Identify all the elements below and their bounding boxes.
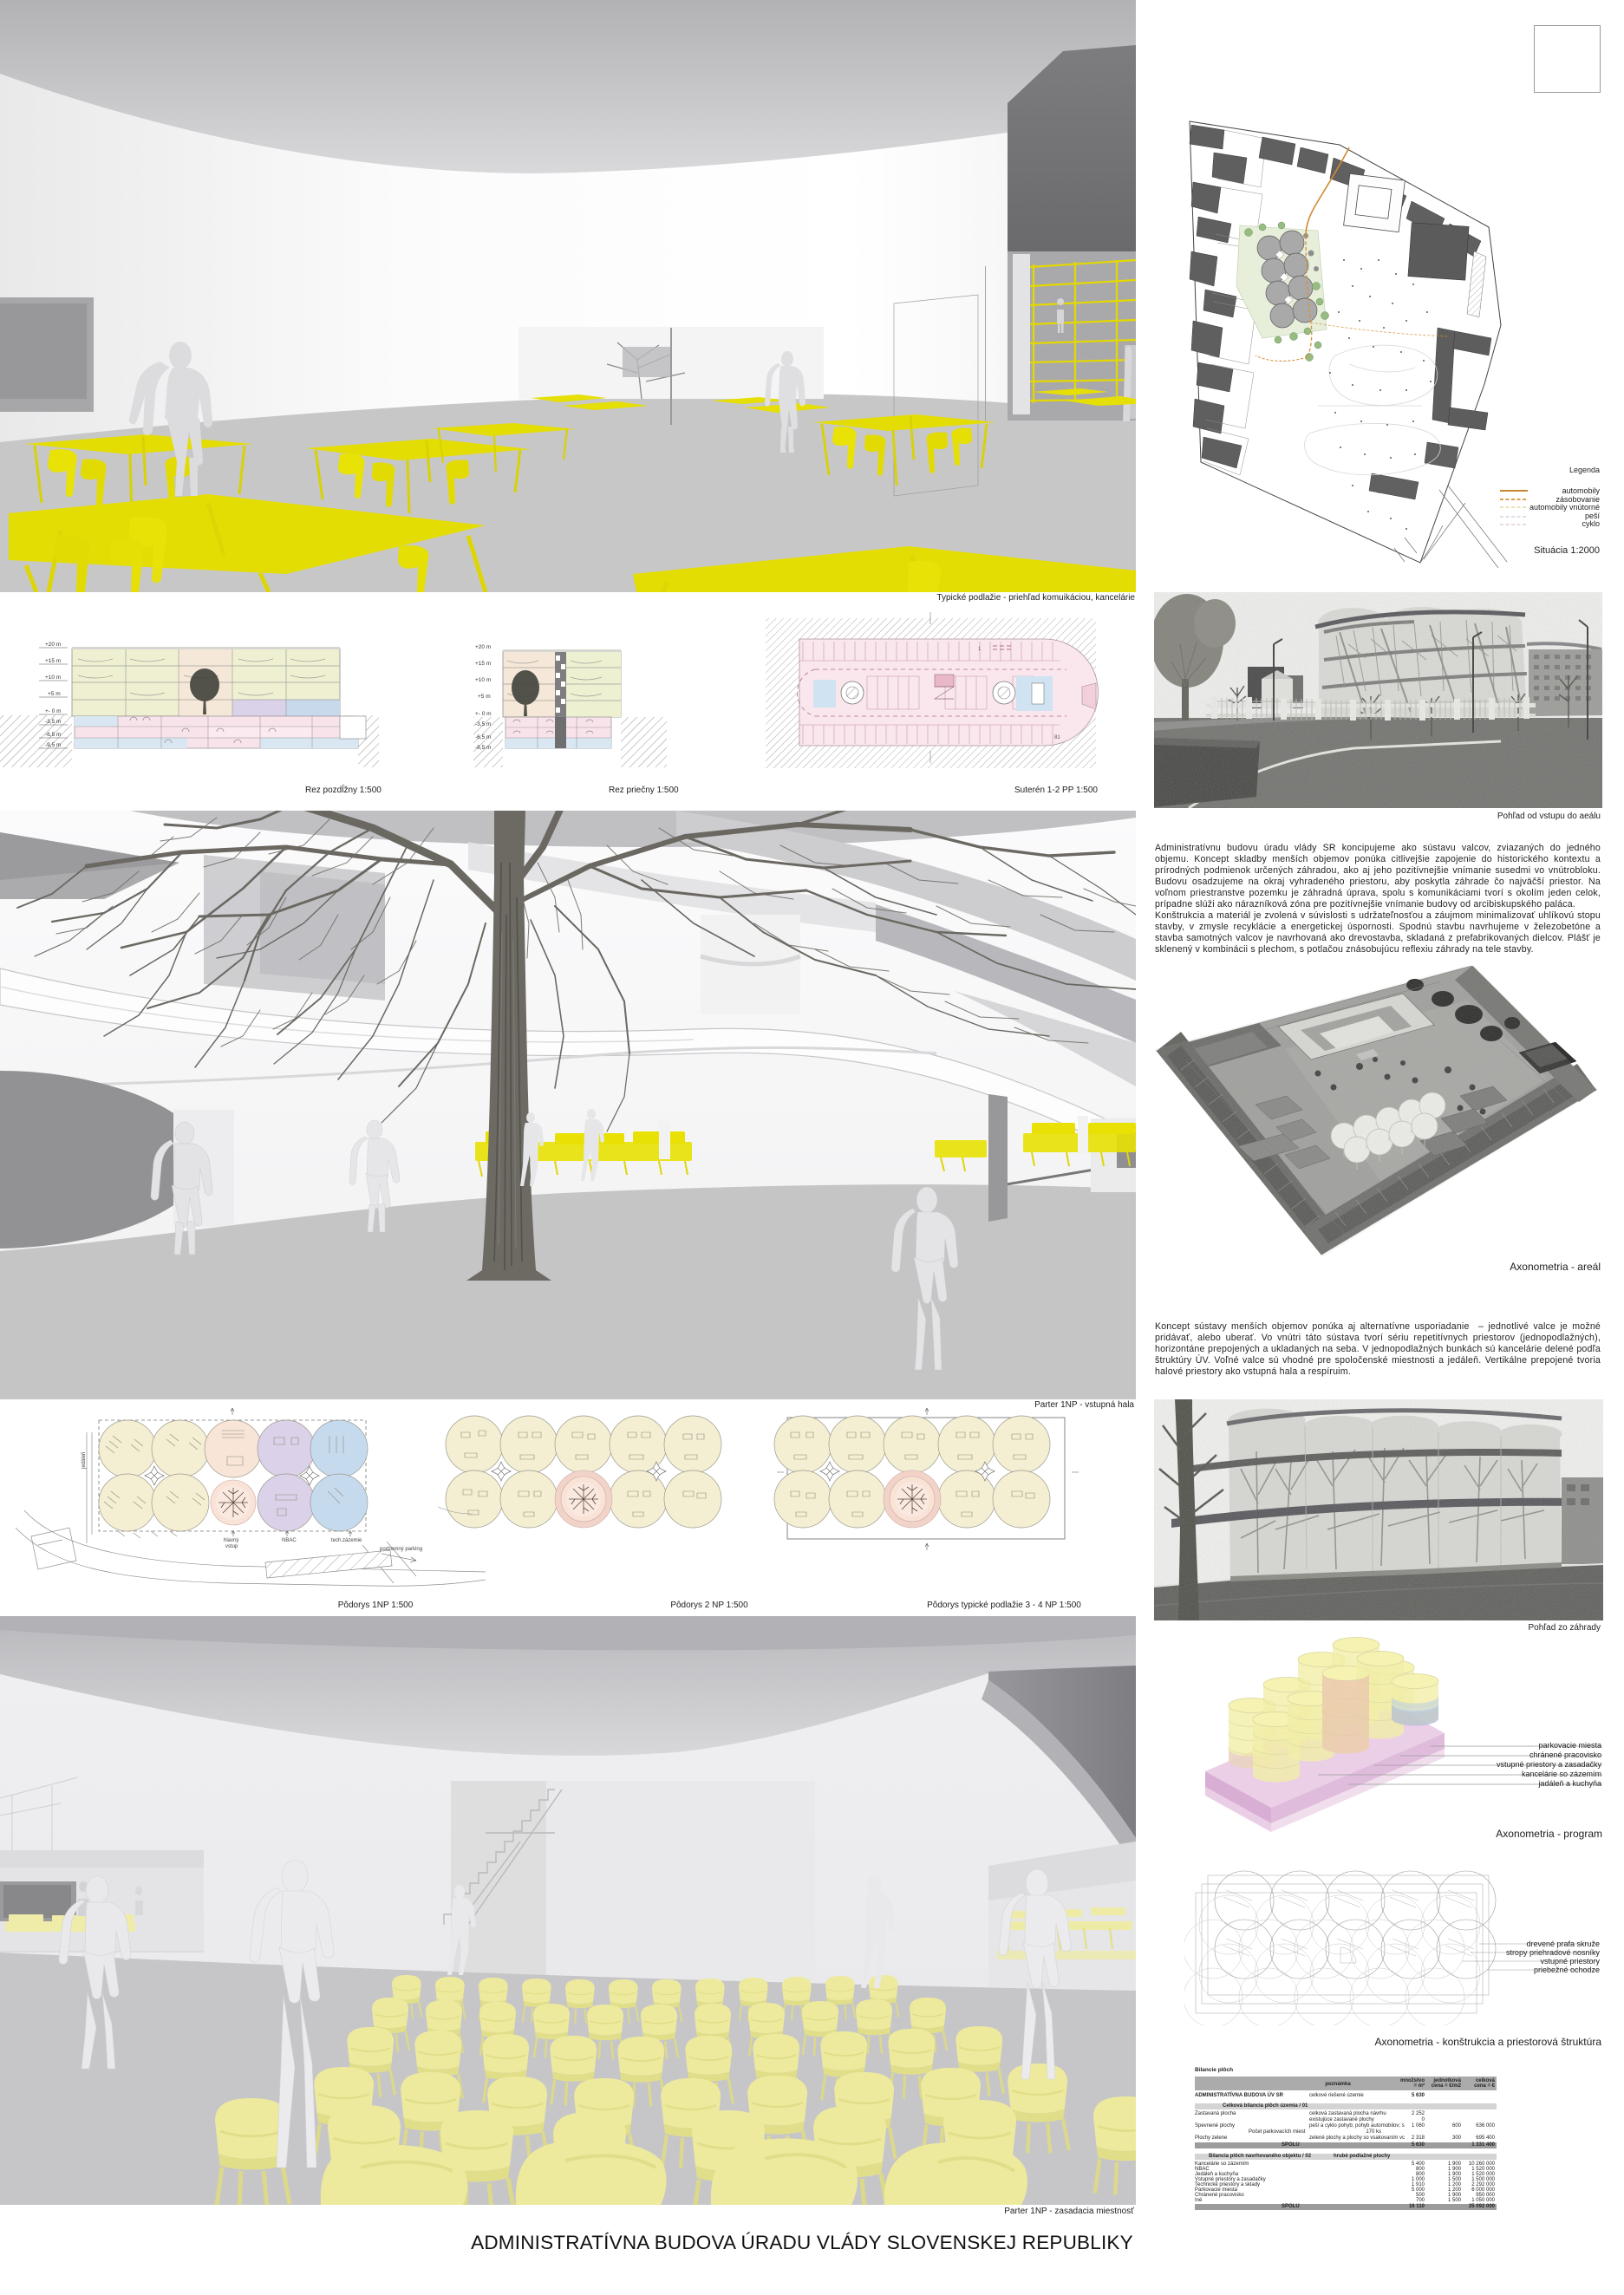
svg-text:+5 m: +5 m <box>478 694 491 700</box>
svg-text:+5 m: +5 m <box>48 691 61 697</box>
svg-text:+10 m: +10 m <box>45 675 61 681</box>
svg-text:tech.zázemie: tech.zázemie <box>331 1538 362 1543</box>
svg-text:81: 81 <box>1054 735 1060 740</box>
svg-text:+20 m: +20 m <box>475 644 491 650</box>
svg-text:-9,5 m: -9,5 m <box>475 745 491 751</box>
svg-text:+10 m: +10 m <box>475 677 491 683</box>
svg-text:jedáleň: jedáleň <box>82 1452 87 1470</box>
svg-text:+20 m: +20 m <box>45 642 61 648</box>
svg-text:NBAC: NBAC <box>282 1538 297 1543</box>
svg-text:-9,5 m: -9,5 m <box>45 742 61 748</box>
svg-text:-6,5 m: -6,5 m <box>475 734 491 740</box>
svg-text:podzemný parking: podzemný parking <box>380 1547 422 1552</box>
svg-text:+- 0 m: +- 0 m <box>475 711 492 717</box>
svg-text:+- 0 m: +- 0 m <box>45 708 62 714</box>
svg-text:-6,5 m: -6,5 m <box>45 732 61 738</box>
svg-text:vstup: vstup <box>225 1544 238 1549</box>
svg-text:-3,5 m: -3,5 m <box>45 719 61 725</box>
svg-text:+15 m: +15 m <box>45 658 61 664</box>
svg-text:-3,5 m: -3,5 m <box>475 721 491 727</box>
svg-text:hlavný: hlavný <box>224 1538 238 1543</box>
svg-text:+15 m: +15 m <box>475 661 491 667</box>
